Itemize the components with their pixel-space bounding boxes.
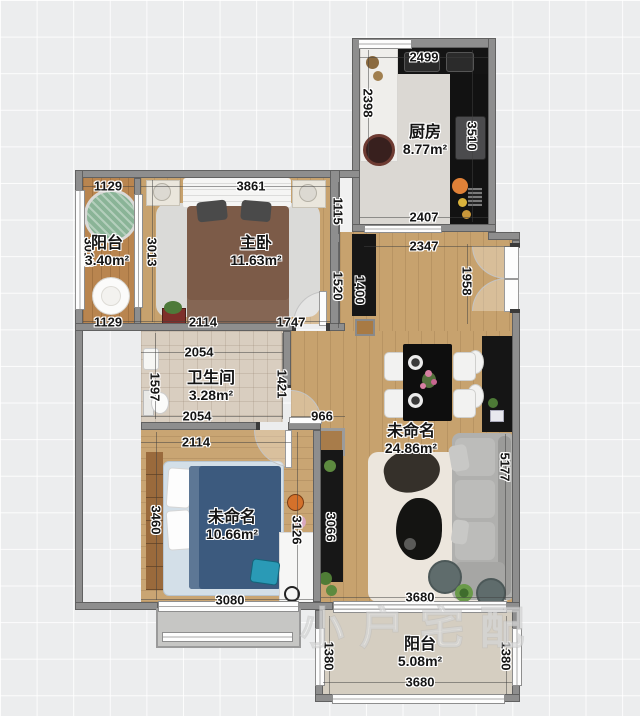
dim-kitchen-bottom: 2407 xyxy=(410,210,439,225)
door-jamb xyxy=(510,243,520,247)
basketball xyxy=(287,494,304,511)
dim-entry-right: 1958 xyxy=(460,267,475,296)
dim-line xyxy=(141,442,291,443)
dim-bed2-right: 3126 xyxy=(290,516,305,545)
dim-master-top: 3861 xyxy=(237,179,266,194)
green-plant-small xyxy=(488,398,498,408)
room-name: 阳台 xyxy=(85,235,129,253)
dim-tv-cabinet: 3066 xyxy=(324,513,339,542)
room-label-living-room: 未命名 24.86m² xyxy=(385,423,437,457)
white-box xyxy=(490,410,504,422)
room-label-bathroom: 卫生间 3.28m² xyxy=(187,370,235,404)
dim-line xyxy=(141,416,283,417)
plate xyxy=(408,393,423,408)
plate xyxy=(408,355,423,370)
door-jamb xyxy=(510,309,520,313)
dim-balcony-left-bottom: 1129 xyxy=(94,315,122,330)
entrance-door-leaf xyxy=(504,279,519,312)
dim-line xyxy=(141,186,330,187)
dim-kitchen-left: 2398 xyxy=(361,89,376,118)
dim-kitchen-right: 3510 xyxy=(465,122,480,151)
room-area: 5.08m² xyxy=(398,654,442,670)
outer-wall-bottom-left xyxy=(75,602,158,610)
flower-pink xyxy=(431,379,437,385)
bay-window-frame xyxy=(156,608,301,648)
door-jamb xyxy=(256,422,260,430)
dim-bath-top: 2054 xyxy=(185,345,214,360)
dim-bath-bottom: 2054 xyxy=(183,409,212,424)
coffee-table xyxy=(396,498,442,560)
dim-bath-right: 1421 xyxy=(275,370,290,399)
sun-hat xyxy=(92,277,130,315)
dim-hall-width: 966 xyxy=(311,409,333,424)
room-label-bedroom2: 未命名 10.66m² xyxy=(206,509,258,543)
entrance-door-leaf xyxy=(504,246,519,279)
balcony-bottom-window xyxy=(332,694,505,704)
dim-entry-cabinet: 1400 xyxy=(353,276,368,305)
dim-balcony-left-top: 1129 xyxy=(94,179,122,194)
dim-bed2-bottom: 3080 xyxy=(216,593,245,608)
kitchen-sliding-door xyxy=(364,225,442,233)
dim-kitchen-top: 2499 xyxy=(410,50,439,65)
wood-bowl xyxy=(373,71,383,81)
bedroom2-door-leaf xyxy=(285,430,292,468)
dim-bed2-left: 3460 xyxy=(149,506,164,535)
room-area: 3.28m² xyxy=(187,388,235,404)
door-jamb xyxy=(326,323,330,331)
outer-wall-right xyxy=(512,310,520,610)
dining-chair xyxy=(453,389,476,418)
dim-entry-top: 2347 xyxy=(410,239,439,254)
kitchen-sink xyxy=(446,52,474,72)
room-area: 24.86m² xyxy=(385,441,437,457)
kitchen-window xyxy=(358,39,412,49)
room-name: 未命名 xyxy=(206,509,258,527)
dining-chair xyxy=(453,352,476,381)
room-area: 3.40m² xyxy=(85,253,129,269)
room-label-balcony-left: 阳台 3.40m² xyxy=(85,235,129,269)
dim-master-right-lower: 1520 xyxy=(331,272,346,301)
orange-dish xyxy=(452,178,468,194)
watermark: 小户宅配 xyxy=(300,592,540,656)
flower-pink xyxy=(425,370,432,377)
room-name: 厨房 xyxy=(403,124,447,142)
master-pillow xyxy=(240,200,272,223)
bay-window-outer xyxy=(162,632,293,642)
master-pillow xyxy=(196,199,228,222)
room-area: 8.77m² xyxy=(403,142,447,158)
coffee-table-tray xyxy=(404,538,416,550)
dim-master-bottom-left: 2114 xyxy=(189,315,217,330)
blue-stool xyxy=(249,558,280,586)
dim-master-left: 3013 xyxy=(145,238,160,267)
dim-balcony-bottom-bottom: 3680 xyxy=(406,675,435,690)
entry-stool xyxy=(355,319,375,336)
dim-living-right: 5177 xyxy=(498,453,513,482)
bed2-living-divider xyxy=(313,430,321,602)
hall-wall-top-right xyxy=(488,232,520,240)
dim-master-right-upper: 1115 xyxy=(331,197,346,225)
dim-bath-left: 1597 xyxy=(148,373,163,402)
master-plant-leaves xyxy=(164,301,182,314)
room-label-master-bedroom: 主卧 11.63m² xyxy=(230,235,281,269)
room-name: 卫生间 xyxy=(187,370,235,388)
room-area: 10.66m² xyxy=(206,527,258,543)
small-bowl xyxy=(458,198,467,207)
room-name: 主卧 xyxy=(230,235,281,253)
floor-plan-canvas: 2499 2398 3510 2407 1129 3013 1129 3861 … xyxy=(0,0,640,716)
kitchen-wall-right xyxy=(488,38,496,232)
dim-master-bottom-right: 1747 xyxy=(277,315,306,330)
room-label-kitchen: 厨房 8.77m² xyxy=(403,124,447,158)
sofa-pillow xyxy=(450,519,469,545)
sofa-cushion xyxy=(455,480,495,518)
room-area: 11.63m² xyxy=(230,253,281,269)
kitchen-wall-left xyxy=(352,38,360,232)
flower-pink xyxy=(420,383,426,389)
outer-wall-top xyxy=(75,170,360,178)
green-plant-small xyxy=(324,460,336,472)
balcony-master-window xyxy=(134,194,143,308)
dim-bed2-top: 2114 xyxy=(182,435,210,450)
grill-rack xyxy=(468,188,482,206)
room-name: 未命名 xyxy=(385,423,437,441)
